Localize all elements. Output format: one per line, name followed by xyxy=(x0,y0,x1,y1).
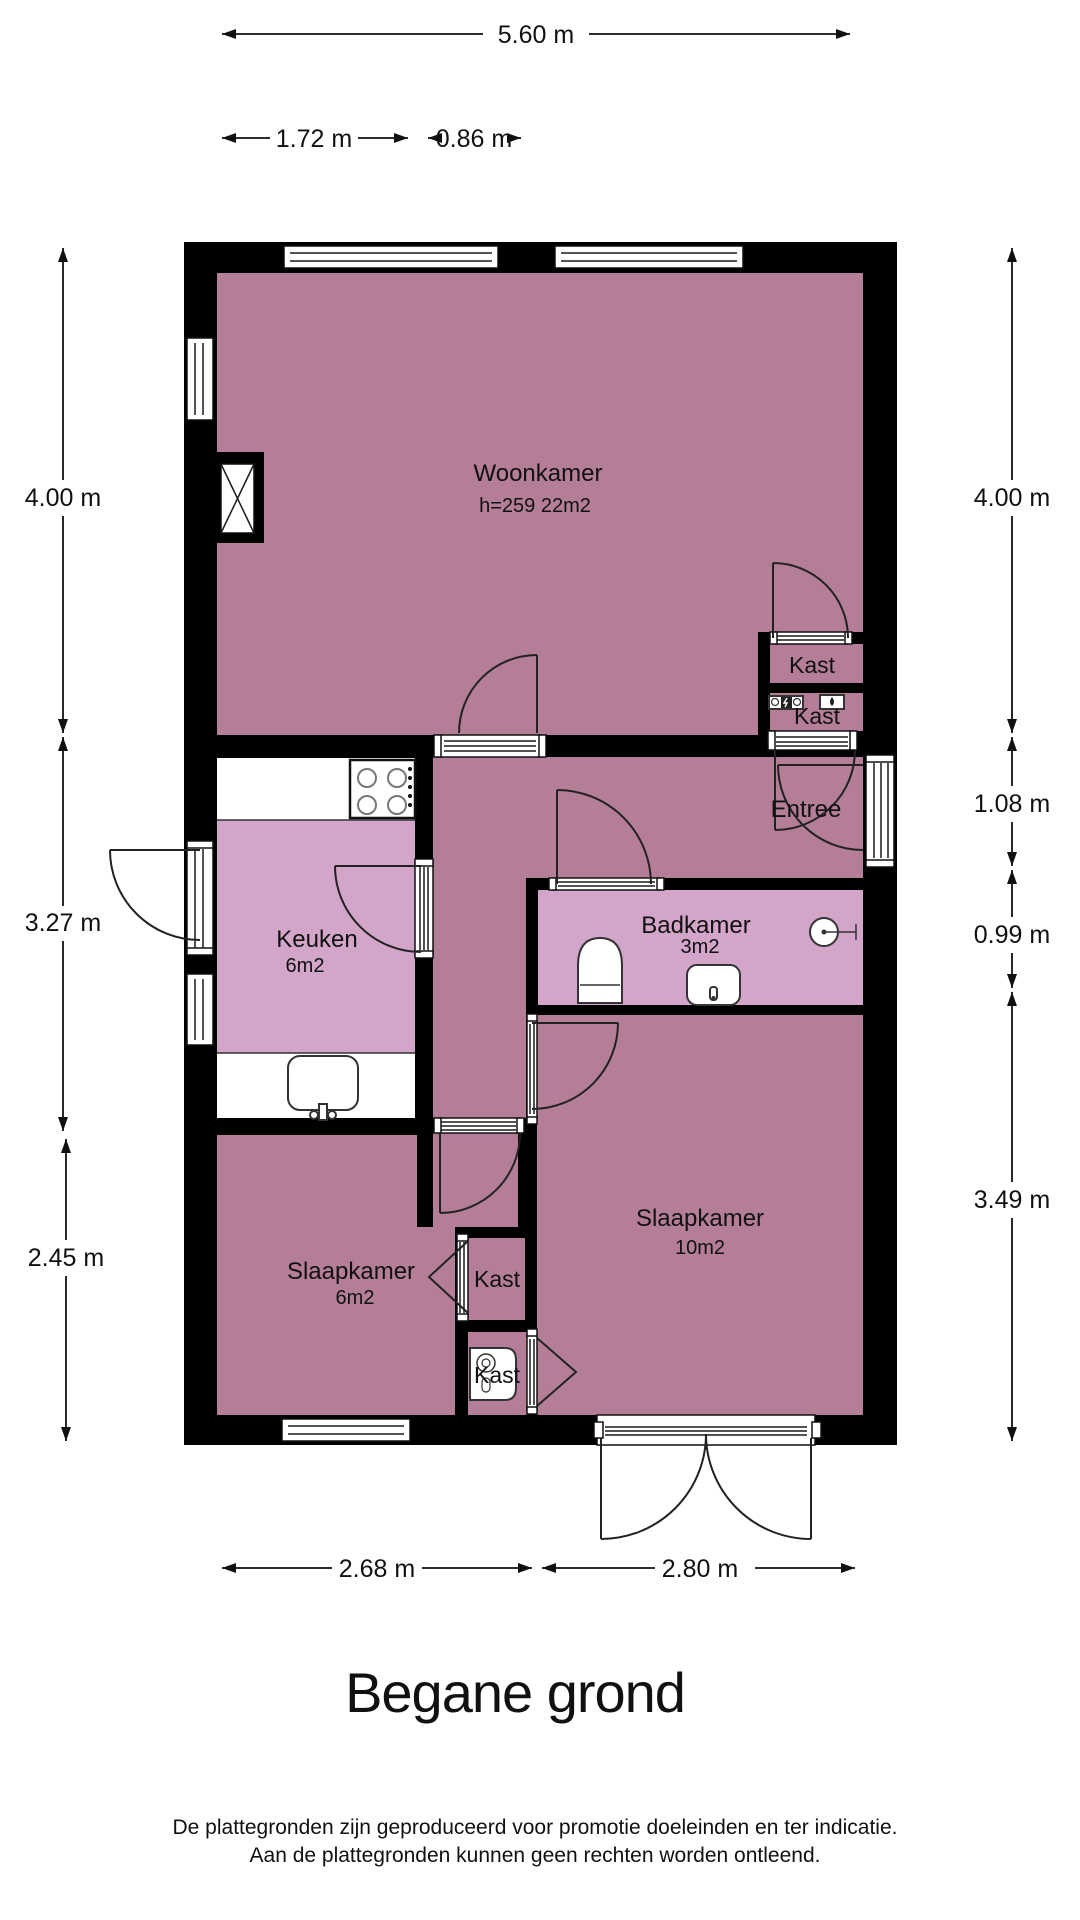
room-fills xyxy=(217,273,863,1415)
shaft xyxy=(217,452,264,543)
dim-right-3: 3.49 m xyxy=(974,1186,1050,1214)
dim-right-0: 4.00 m xyxy=(974,484,1050,512)
dim-left-2: 2.45 m xyxy=(28,1244,104,1272)
wall-vestibule-west xyxy=(417,1118,433,1227)
dim-bottom-1: 2.80 m xyxy=(662,1555,738,1583)
label-keuken-area: 6m2 xyxy=(286,955,325,977)
window-top-right xyxy=(555,246,743,268)
label-slaapkamer-links: Slaapkamer xyxy=(287,1258,415,1285)
label-woonkamer: Woonkamer xyxy=(474,460,603,487)
room-corridor xyxy=(433,878,526,1118)
label-kast-midden: Kast xyxy=(474,1266,521,1292)
label-slaapkamer-links-area: 6m2 xyxy=(336,1287,375,1309)
dim-left-1: 3.27 m xyxy=(25,909,101,937)
window-top-left xyxy=(284,246,498,268)
french-doors xyxy=(594,1415,821,1539)
window-left-woonkamer xyxy=(187,338,213,420)
floorplan-canvas: Woonkamer h=259 22m2 Kast Kast Entree Ke… xyxy=(0,0,1080,1920)
window-bottom-slaapkamer xyxy=(282,1419,410,1441)
dim-right-1: 1.08 m xyxy=(974,790,1050,818)
dim-right-2: 0.99 m xyxy=(974,921,1050,949)
label-woonkamer-details: h=259 22m2 xyxy=(479,495,591,517)
label-keuken: Keuken xyxy=(276,926,357,953)
label-badkamer-area: 3m2 xyxy=(681,936,720,958)
label-kast-onder: Kast xyxy=(474,1362,521,1388)
kitchen-sink-icon xyxy=(288,1056,358,1120)
label-slaapkamer-rechts-area: 10m2 xyxy=(675,1237,725,1259)
footer-line1: De plattegronden zijn geproduceerd voor … xyxy=(173,1816,898,1839)
dim-top-left: 1.72 m xyxy=(276,125,352,153)
toilet-icon xyxy=(578,938,622,1003)
label-slaapkamer-rechts: Slaapkamer xyxy=(636,1205,764,1232)
dim-top-total: 5.60 m xyxy=(498,21,574,49)
keuken-exterior-door xyxy=(110,841,213,955)
label-entree: Entree xyxy=(771,796,842,823)
dim-bottom-0: 2.68 m xyxy=(339,1555,415,1583)
page-title: Begane grond xyxy=(345,1661,685,1724)
dim-top-right: 0.86 m xyxy=(436,125,512,153)
label-kast-meter: Kast xyxy=(794,703,841,729)
dim-left-0: 4.00 m xyxy=(25,484,101,512)
label-badkamer: Badkamer xyxy=(641,912,750,939)
label-kast-boven: Kast xyxy=(789,652,836,678)
bathroom-sink-icon xyxy=(687,965,740,1005)
footer-line2: Aan de plattegronden kunnen geen rechten… xyxy=(250,1844,821,1867)
floorplan-page: Woonkamer h=259 22m2 Kast Kast Entree Ke… xyxy=(0,0,1080,1920)
stove-icon xyxy=(350,760,415,818)
window-left-keuken xyxy=(187,974,213,1045)
